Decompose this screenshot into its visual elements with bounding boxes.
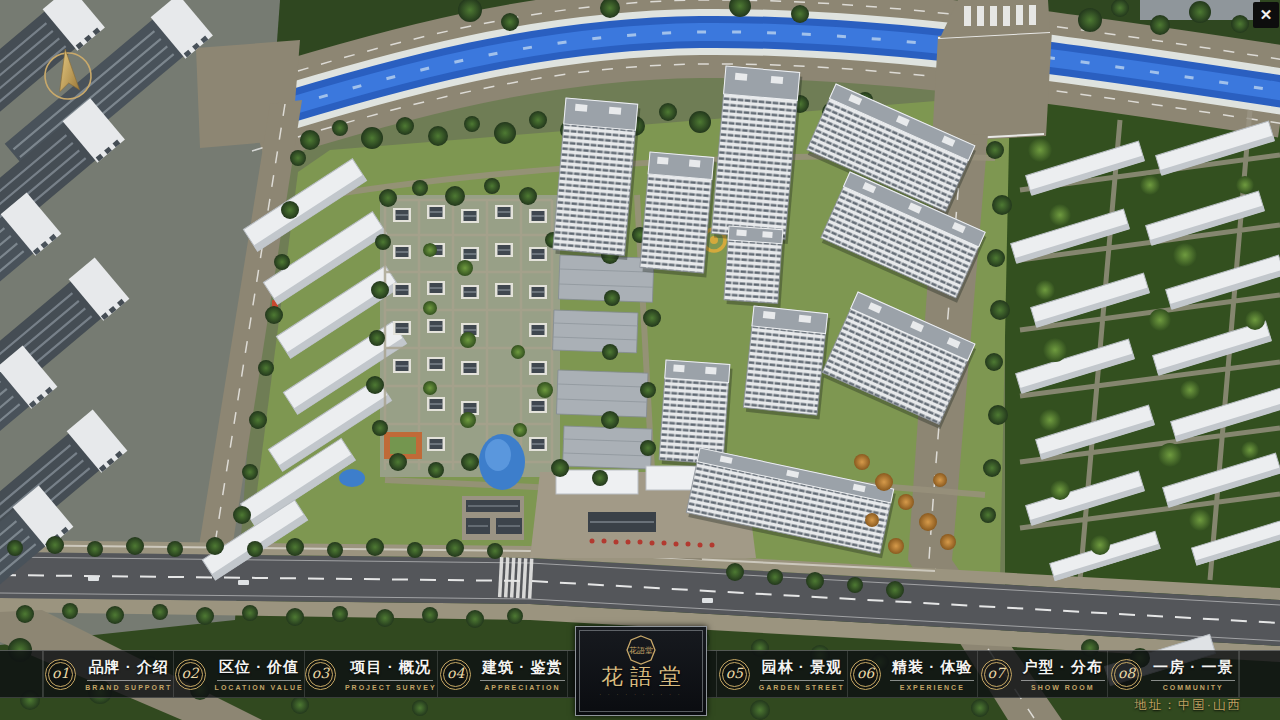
nav-number-badge: o6 — [850, 659, 881, 690]
logo-subtext: · · · · · · · · · · — [599, 692, 682, 697]
nav-item-brand-intro[interactable]: o1 品牌 · 介绍 BRAND SUPPORT — [43, 651, 173, 697]
nav-label-en: COMMUNITY — [1163, 684, 1224, 691]
nav-number-badge: o3 — [305, 659, 336, 690]
nav-item-architecture-appreciation[interactable]: o4 建筑 · 鉴赏 APPRECIATION — [437, 651, 568, 697]
navbar-left-spacer — [0, 651, 43, 697]
nav-item-interior-experience[interactable]: o6 精装 · 体验 EXPERIENCE — [847, 651, 977, 697]
nav-label-en: BRAND SUPPORT — [85, 684, 172, 691]
presentation-stage: o1 品牌 · 介绍 BRAND SUPPORT o2 区位 · 价值 LOCA… — [0, 0, 1280, 720]
close-button[interactable]: ✕ — [1253, 2, 1279, 28]
nav-number-badge: o5 — [719, 659, 750, 690]
nav-label-zh: 建筑 · 鉴赏 — [480, 658, 564, 681]
nav-label-en: LOCATION VALUE — [215, 684, 304, 691]
svg-text:花語堂: 花語堂 — [629, 646, 653, 655]
nav-number-badge: o7 — [981, 659, 1012, 690]
nav-label-en: SHOW ROOM — [1031, 684, 1095, 691]
nav-label-zh: 区位 · 价值 — [217, 658, 301, 681]
project-address-text: 地址：中国·山西 — [1134, 697, 1242, 714]
nav-number-badge: o1 — [45, 659, 76, 690]
nav-item-room-view[interactable]: o8 一房 · 一景 COMMUNITY — [1107, 651, 1238, 697]
project-logo-plaque[interactable]: 花語堂 花語堂 · · · · · · · · · · — [575, 626, 707, 716]
nav-label-zh: 项目 · 概况 — [349, 658, 433, 681]
nav-number-badge: o8 — [1111, 659, 1142, 690]
nav-number-badge: o2 — [175, 659, 206, 690]
nav-label-zh: 品牌 · 介绍 — [87, 658, 171, 681]
nav-label-en: GARDEN STREET — [759, 684, 845, 691]
nav-label-zh: 一房 · 一景 — [1151, 658, 1235, 681]
nav-item-floorplan-distribution[interactable]: o7 户型 · 分布 SHOW ROOM — [977, 651, 1107, 697]
logo-project-name: 花語堂 — [594, 665, 688, 689]
aerial-map-render[interactable] — [0, 0, 1280, 720]
logo-seal-icon: 花語堂 — [626, 635, 656, 665]
navbar-right-spacer — [1239, 651, 1280, 697]
nav-label-en: APPRECIATION — [484, 684, 560, 691]
nav-label-zh: 户型 · 分布 — [1021, 658, 1105, 681]
nav-label-en: EXPERIENCE — [900, 684, 965, 691]
nav-label-en: PROJECT SURVEY — [345, 684, 437, 691]
close-icon: ✕ — [1260, 6, 1273, 24]
nav-item-garden-landscape[interactable]: o5 园林 · 景观 GARDEN STREET — [716, 651, 846, 697]
nav-number-badge: o4 — [440, 659, 471, 690]
nav-item-project-overview[interactable]: o3 项目 · 概况 PROJECT SURVEY — [304, 651, 437, 697]
nav-label-zh: 精装 · 体验 — [890, 658, 974, 681]
nav-item-location-value[interactable]: o2 区位 · 价值 LOCATION VALUE — [173, 651, 303, 697]
nav-label-zh: 园林 · 景观 — [760, 658, 844, 681]
